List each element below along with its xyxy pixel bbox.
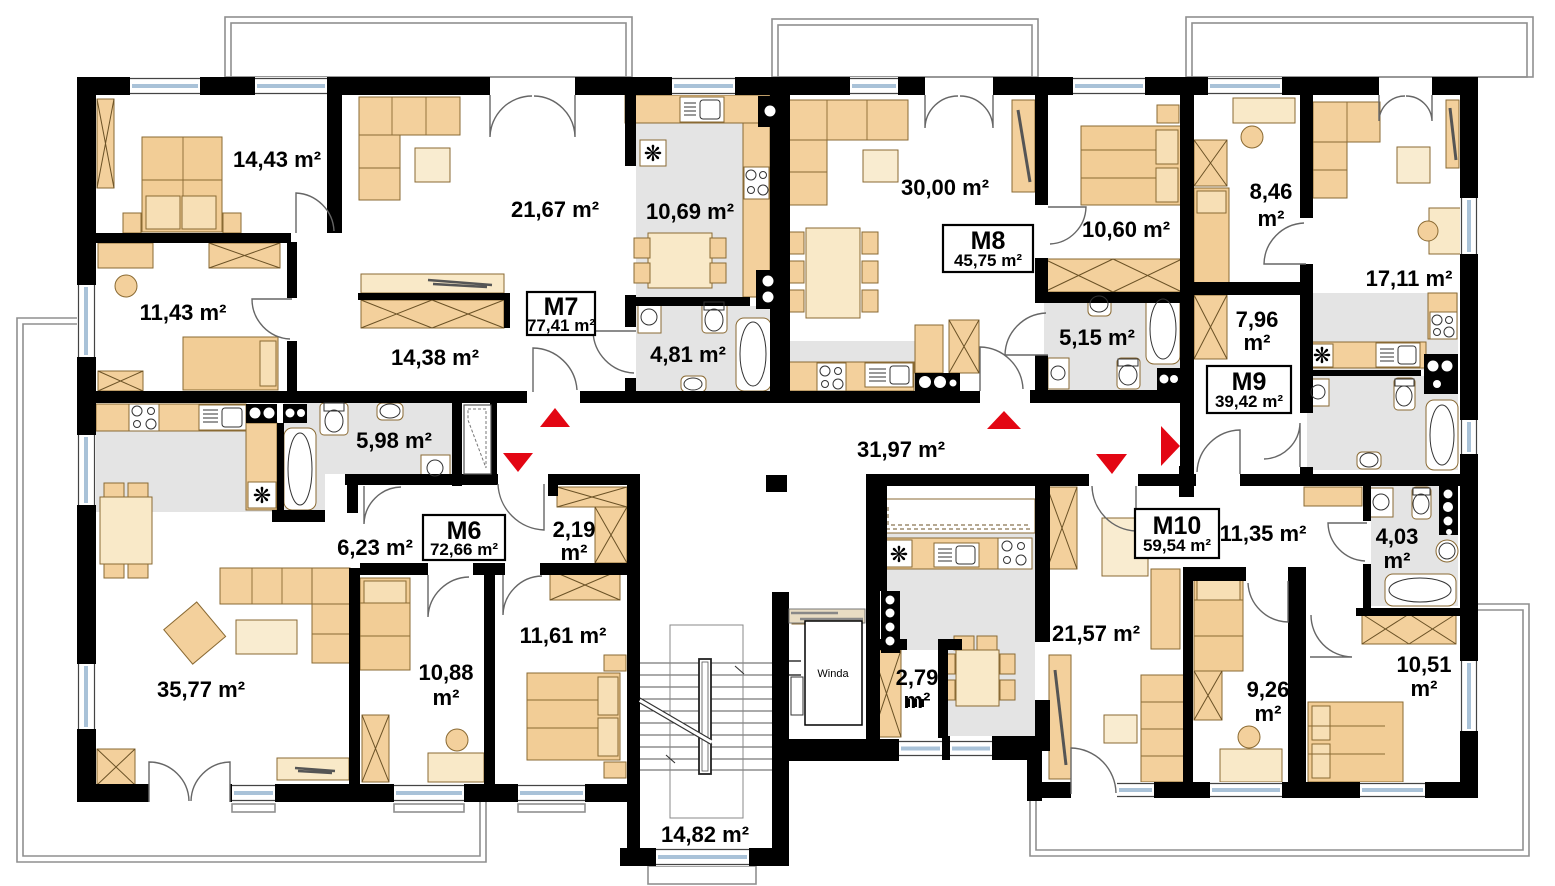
svg-text:21,57 m²: 21,57 m² <box>1052 621 1140 646</box>
svg-text:9,26: 9,26 <box>1247 677 1290 702</box>
svg-text:11,61 m²: 11,61 m² <box>520 623 607 648</box>
svg-text:35,77 m²: 35,77 m² <box>157 677 245 702</box>
svg-text:77,41 m²: 77,41 m² <box>527 316 595 335</box>
svg-text:59,54 m²: 59,54 m² <box>1143 536 1211 555</box>
svg-text:❋: ❋ <box>890 542 908 567</box>
svg-text:7,96: 7,96 <box>1236 307 1279 332</box>
svg-text:Winda: Winda <box>817 668 849 680</box>
svg-text:m²: m² <box>1258 206 1285 231</box>
svg-text:5,15 m²: 5,15 m² <box>1059 325 1135 350</box>
svg-text:m²: m² <box>1411 676 1438 701</box>
svg-text:10,60 m²: 10,60 m² <box>1082 217 1170 242</box>
svg-text:10,69 m²: 10,69 m² <box>646 199 734 224</box>
svg-text:4,81 m²: 4,81 m² <box>650 342 726 367</box>
svg-text:m²: m² <box>1384 548 1411 573</box>
svg-text:2,19: 2,19 <box>553 517 596 542</box>
svg-text:m²: m² <box>561 540 588 565</box>
svg-text:30,00 m²: 30,00 m² <box>901 175 989 200</box>
svg-text:❋: ❋ <box>253 483 271 508</box>
svg-text:2,79: 2,79 <box>896 665 939 690</box>
svg-text:❋: ❋ <box>1313 343 1331 368</box>
svg-text:10,88: 10,88 <box>418 660 473 685</box>
svg-text:m²: m² <box>1244 330 1271 355</box>
svg-text:5,98 m²: 5,98 m² <box>356 428 432 453</box>
svg-text:31,97 m²: 31,97 m² <box>857 437 945 462</box>
svg-text:39,42 m²: 39,42 m² <box>1215 392 1283 411</box>
svg-text:4,03: 4,03 <box>1376 524 1419 549</box>
svg-text:45,75 m²: 45,75 m² <box>954 251 1022 270</box>
svg-text:14,82 m²: 14,82 m² <box>661 822 749 847</box>
svg-text:11,35 m²: 11,35 m² <box>1220 521 1307 546</box>
svg-text:21,67 m²: 21,67 m² <box>511 197 599 222</box>
svg-text:m²: m² <box>904 688 931 713</box>
svg-text:72,66 m²: 72,66 m² <box>430 540 498 559</box>
svg-text:14,38 m²: 14,38 m² <box>391 345 479 370</box>
svg-text:17,11 m²: 17,11 m² <box>1366 266 1453 291</box>
svg-text:10,51: 10,51 <box>1396 652 1451 677</box>
svg-text:m²: m² <box>433 685 460 710</box>
svg-text:❋: ❋ <box>644 141 662 166</box>
svg-text:14,43 m²: 14,43 m² <box>233 147 321 172</box>
svg-text:8,46: 8,46 <box>1250 179 1293 204</box>
svg-text:6,23 m²: 6,23 m² <box>337 535 413 560</box>
svg-text:11,43 m²: 11,43 m² <box>140 300 227 325</box>
svg-text:m²: m² <box>1255 701 1282 726</box>
